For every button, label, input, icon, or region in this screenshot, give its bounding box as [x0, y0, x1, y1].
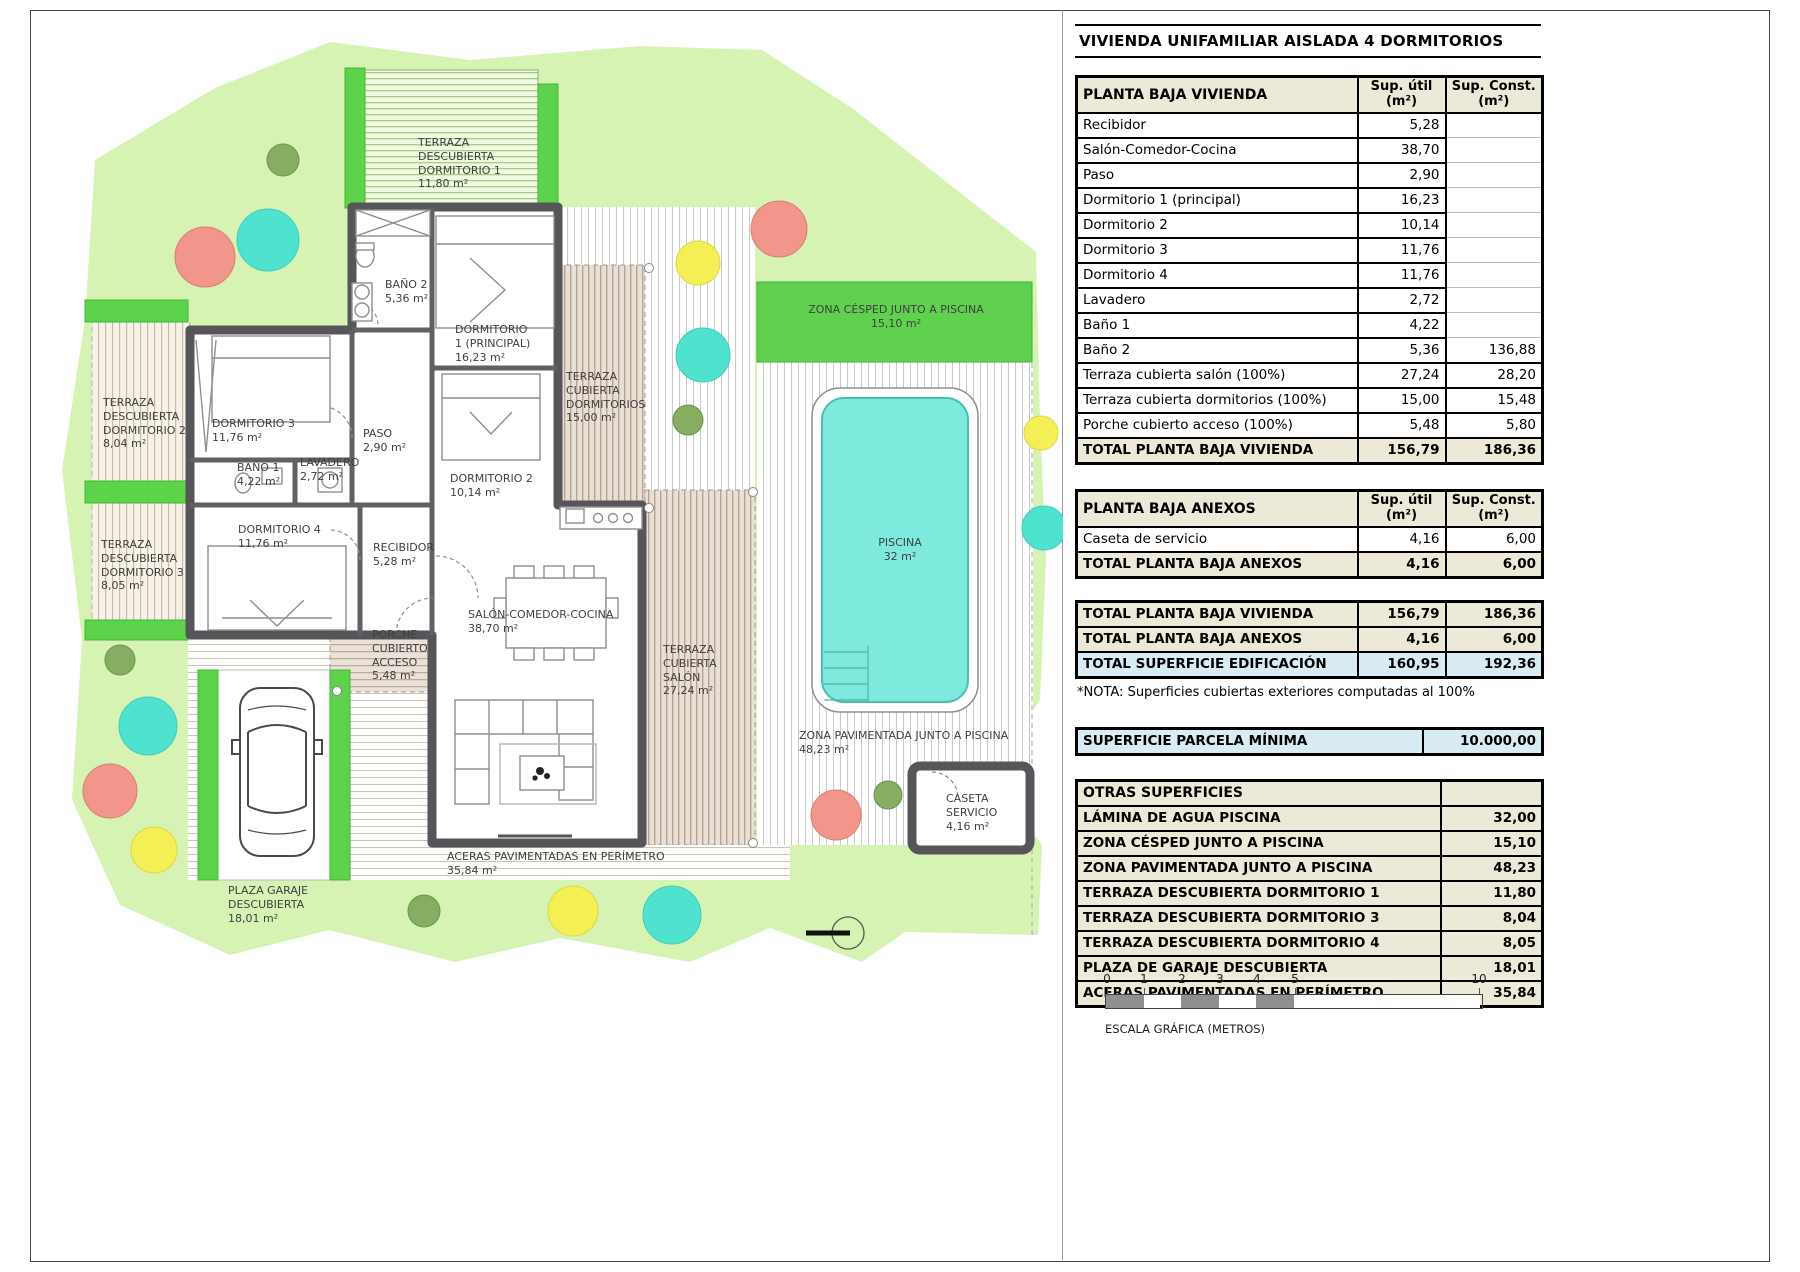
label-line: DORMITORIO 2 — [450, 472, 533, 486]
cell: TERRAZA DESCUBIERTA DORMITORIO 1 — [1077, 881, 1441, 906]
tree — [676, 241, 720, 285]
cell: Dormitorio 3 — [1077, 238, 1358, 263]
scale-segment — [1106, 995, 1144, 1008]
tree — [811, 790, 861, 840]
cell: Baño 2 — [1077, 338, 1358, 363]
cell: ZONA PAVIMENTADA JUNTO A PISCINA — [1077, 856, 1441, 881]
label-line: 32 m² — [845, 550, 955, 564]
col-unit: (m²) — [1364, 95, 1440, 110]
label-zona-pavimentada: ZONA PAVIMENTADA JUNTO A PISCINA48,23 m² — [799, 729, 1008, 757]
floor-plan — [30, 10, 1063, 1262]
scale-segment — [1256, 995, 1294, 1008]
scale-tick-label: 5 — [1291, 972, 1299, 986]
summary-util: 156,79 — [1358, 601, 1446, 627]
label-terraza-dorm1: TERRAZADESCUBIERTADORMITORIO 111,80 m² — [418, 136, 501, 191]
label-line: 5,48 m² — [372, 669, 428, 683]
cell: 4,22 — [1358, 313, 1446, 338]
col-unit: (m²) — [1452, 95, 1537, 110]
table-row: Baño 25,36136,88 — [1077, 338, 1543, 363]
label-line: PORCHE — [372, 628, 428, 642]
cell: 27,24 — [1358, 363, 1446, 388]
label-line: 38,70 m² — [468, 622, 613, 636]
col-label: Sup. útil — [1364, 80, 1440, 95]
table-row: ZONA CÉSPED JUNTO A PISCINA15,10 — [1077, 831, 1543, 856]
label-line: 8,04 m² — [103, 437, 186, 451]
cell: 16,23 — [1358, 188, 1446, 213]
cell: Paso — [1077, 163, 1358, 188]
label-salon: SALÓN-COMEDOR-COCINA38,70 m² — [468, 608, 613, 636]
cell: 11,76 — [1358, 238, 1446, 263]
label-line: 5,28 m² — [373, 555, 434, 569]
note-text: *NOTA: Superficies cubiertas exteriores … — [1075, 685, 1541, 700]
label-caseta: CASETASERVICIO4,16 m² — [946, 792, 997, 833]
tree — [874, 781, 902, 809]
summary-const: 6,00 — [1446, 627, 1543, 652]
table-row: LÁMINA DE AGUA PISCINA32,00 — [1077, 806, 1543, 831]
label-line: ZONA CÉSPED JUNTO A PISCINA — [760, 303, 1032, 317]
label-line: 10,14 m² — [450, 486, 533, 500]
table-title: PLANTA BAJA ANEXOS — [1077, 490, 1358, 526]
scale-segment — [1294, 995, 1480, 1008]
cell: Caseta de servicio — [1077, 527, 1358, 552]
label-terraza-cub-dorm: TERRAZACUBIERTADORMITORIOS15,00 m² — [566, 370, 645, 425]
cell — [1446, 188, 1543, 213]
label-line: 2,72 m² — [300, 470, 359, 484]
plan-sheet: { "title": "VIVIENDA UNIFAMILIAR AISLADA… — [0, 0, 1800, 1272]
strip-right-top — [557, 207, 755, 265]
cell: 11,76 — [1358, 263, 1446, 288]
label-line: 8,05 m² — [101, 579, 184, 593]
label-line: 16,23 m² — [455, 351, 530, 365]
tree — [1024, 416, 1058, 450]
cell: 32,00 — [1441, 806, 1543, 831]
total-util: 4,16 — [1358, 552, 1446, 578]
tree — [548, 886, 598, 936]
table-row: Paso2,90 — [1077, 163, 1543, 188]
label-dorm4: DORMITORIO 411,76 m² — [238, 523, 321, 551]
scale-tick-label: 4 — [1253, 972, 1261, 986]
cell — [1446, 263, 1543, 288]
label-line: BAÑO 1 — [237, 461, 280, 475]
label-bano2: BAÑO 25,36 m² — [385, 278, 428, 306]
cell: 2,72 — [1358, 288, 1446, 313]
table-row: Dormitorio 1 (principal)16,23 — [1077, 188, 1543, 213]
tree — [1022, 506, 1063, 550]
table-row: ZONA PAVIMENTADA JUNTO A PISCINA48,23 — [1077, 856, 1543, 881]
label-line: LAVADERO — [300, 456, 359, 470]
cell: 4,16 — [1358, 527, 1446, 552]
table-row: Lavadero2,72 — [1077, 288, 1543, 313]
summary-util: 4,16 — [1358, 627, 1446, 652]
label-zona-cesped: ZONA CÉSPED JUNTO A PISCINA15,10 m² — [760, 303, 1032, 331]
summary-const: 192,36 — [1446, 652, 1543, 678]
scale-caption: ESCALA GRÁFICA (METROS) — [1105, 1022, 1265, 1036]
cell: Salón-Comedor-Cocina — [1077, 138, 1358, 163]
label-dorm3: DORMITORIO 311,76 m² — [212, 417, 295, 445]
cell: 5,48 — [1358, 413, 1446, 438]
cell — [1446, 213, 1543, 238]
table-planta-baja-anexos: PLANTA BAJA ANEXOS Sup. útil (m²) Sup. C… — [1075, 489, 1544, 579]
summary-row: TOTAL PLANTA BAJA VIVIENDA 156,79 186,36 — [1077, 601, 1543, 627]
scale-tick-label: 1 — [1140, 972, 1148, 986]
label-paso: PASO2,90 m² — [363, 427, 406, 455]
total-row: TOTAL PLANTA BAJA ANEXOS 4,16 6,00 — [1077, 552, 1543, 578]
label-bano1: BAÑO 14,22 m² — [237, 461, 280, 489]
label-line: PASO — [363, 427, 406, 441]
cell: Porche cubierto acceso (100%) — [1077, 413, 1358, 438]
table-row: Dormitorio 210,14 — [1077, 213, 1543, 238]
label-line: 4,22 m² — [237, 475, 280, 489]
table-row: Salón-Comedor-Cocina38,70 — [1077, 138, 1543, 163]
label-line: 27,24 m² — [663, 684, 717, 698]
col-sup-util: Sup. útil (m²) — [1358, 490, 1446, 526]
label-line: 2,90 m² — [363, 441, 406, 455]
tree — [643, 886, 701, 944]
table-parcela-minima: SUPERFICIE PARCELA MÍNIMA 10.000,00 — [1075, 727, 1544, 756]
cell: 5,36 — [1358, 338, 1446, 363]
table-row: Baño 14,22 — [1077, 313, 1543, 338]
sheet-title: VIVIENDA UNIFAMILIAR AISLADA 4 DORMITORI… — [1075, 24, 1541, 58]
col-unit: (m²) — [1364, 509, 1440, 524]
label-line: 5,36 m² — [385, 292, 428, 306]
cell: 136,88 — [1446, 338, 1543, 363]
table-row: Porche cubierto acceso (100%)5,485,80 — [1077, 413, 1543, 438]
total-label: TOTAL PLANTA BAJA VIVIENDA — [1077, 438, 1358, 464]
summary-label: TOTAL PLANTA BAJA ANEXOS — [1077, 627, 1358, 652]
col-unit: (m²) — [1452, 509, 1537, 524]
tree — [175, 227, 235, 287]
label-line: DESCUBIERTA — [228, 898, 308, 912]
car — [232, 688, 322, 856]
label-line: 11,80 m² — [418, 177, 501, 191]
tree — [119, 697, 177, 755]
parcela-value: 10.000,00 — [1423, 728, 1543, 754]
label-line: DORMITORIO 2 — [103, 424, 186, 438]
label-porche: PORCHECUBIERTOACCESO5,48 m² — [372, 628, 428, 683]
cell: 5,28 — [1358, 113, 1446, 138]
label-line: SERVICIO — [946, 806, 997, 820]
cell: ZONA CÉSPED JUNTO A PISCINA — [1077, 831, 1441, 856]
label-line: PISCINA — [845, 536, 955, 550]
cell: TERRAZA DESCUBIERTA DORMITORIO 3 — [1077, 906, 1441, 931]
cell: 8,05 — [1441, 931, 1543, 956]
scale-tick-label: 0 — [1103, 972, 1111, 986]
tree — [131, 827, 177, 873]
total-const: 186,36 — [1446, 438, 1543, 464]
cell: 15,10 — [1441, 831, 1543, 856]
table-row: Terraza cubierta salón (100%)27,2428,20 — [1077, 363, 1543, 388]
label-lavadero: LAVADERO2,72 m² — [300, 456, 359, 484]
table-header-row: OTRAS SUPERFICIES — [1077, 780, 1543, 806]
cell — [1446, 113, 1543, 138]
label-line: DORMITORIO 3 — [212, 417, 295, 431]
col-sup-util: Sup. útil (m²) — [1358, 77, 1446, 113]
label-line: RECIBIDOR — [373, 541, 434, 555]
tree — [751, 201, 807, 257]
cell: 15,00 — [1358, 388, 1446, 413]
label-line: TERRAZA — [418, 136, 501, 150]
label-line: DESCUBIERTA — [103, 410, 186, 424]
tree — [83, 764, 137, 818]
cell: 38,70 — [1358, 138, 1446, 163]
summary-const: 186,36 — [1446, 601, 1543, 627]
cell — [1446, 138, 1543, 163]
cell: Dormitorio 1 (principal) — [1077, 188, 1358, 213]
label-line: 35,84 m² — [447, 864, 665, 878]
col-label: Sup. útil — [1364, 494, 1440, 509]
label-line: 15,00 m² — [566, 411, 645, 425]
label-plaza-garaje: PLAZA GARAJEDESCUBIERTA18,01 m² — [228, 884, 308, 925]
table-summary: TOTAL PLANTA BAJA VIVIENDA 156,79 186,36… — [1075, 600, 1544, 679]
col-label: Sup. Const. — [1452, 80, 1537, 95]
cell: LÁMINA DE AGUA PISCINA — [1077, 806, 1441, 831]
label-line: TERRAZA — [566, 370, 645, 384]
cell: Baño 1 — [1077, 313, 1358, 338]
table-header-row: PLANTA BAJA VIVIENDA Sup. útil (m²) Sup.… — [1077, 77, 1543, 113]
summary-label: TOTAL PLANTA BAJA VIVIENDA — [1077, 601, 1358, 627]
label-line: DORMITORIO 1 — [418, 164, 501, 178]
label-piscina: PISCINA32 m² — [845, 536, 955, 564]
parcela-label: SUPERFICIE PARCELA MÍNIMA — [1077, 728, 1423, 754]
cell: TERRAZA DESCUBIERTA DORMITORIO 4 — [1077, 931, 1441, 956]
total-const: 6,00 — [1446, 552, 1543, 578]
label-line: DESCUBIERTA — [418, 150, 501, 164]
label-aceras: ACERAS PAVIMENTADAS EN PERÍMETRO35,84 m² — [447, 850, 665, 878]
table-row: Dormitorio 411,76 — [1077, 263, 1543, 288]
label-terraza-cub-salon: TERRAZACUBIERTASALÓN27,24 m² — [663, 643, 717, 698]
label-line: CUBIERTA — [566, 384, 645, 398]
label-line: SALÓN — [663, 671, 717, 685]
empty-header-cell — [1441, 780, 1543, 806]
scale-segment — [1219, 995, 1257, 1008]
table-row: Recibidor5,28 — [1077, 113, 1543, 138]
cell: Lavadero — [1077, 288, 1358, 313]
label-line: 11,76 m² — [238, 537, 321, 551]
table-row: TERRAZA DESCUBIERTA DORMITORIO 38,04 — [1077, 906, 1543, 931]
label-line: CUBIERTA — [663, 657, 717, 671]
label-line: TERRAZA — [663, 643, 717, 657]
total-label: TOTAL PLANTA BAJA ANEXOS — [1077, 552, 1358, 578]
label-line: DORMITORIO 3 — [101, 566, 184, 580]
cell — [1446, 238, 1543, 263]
table-title: PLANTA BAJA VIVIENDA — [1077, 77, 1358, 113]
label-line: CUBIERTO — [372, 642, 428, 656]
tree — [105, 645, 135, 675]
table-row: TERRAZA DESCUBIERTA DORMITORIO 111,80 — [1077, 881, 1543, 906]
cell: 2,90 — [1358, 163, 1446, 188]
tree — [237, 209, 299, 271]
label-line: SALÓN-COMEDOR-COCINA — [468, 608, 613, 622]
cell: 11,80 — [1441, 881, 1543, 906]
cell: 6,00 — [1446, 527, 1543, 552]
label-dorm1: DORMITORIO1 (PRINCIPAL)16,23 m² — [455, 323, 530, 364]
table-row: Terraza cubierta dormitorios (100%)15,00… — [1077, 388, 1543, 413]
label-line: TERRAZA — [101, 538, 184, 552]
label-terraza-dorm2: TERRAZADESCUBIERTADORMITORIO 28,04 m² — [103, 396, 186, 451]
label-line: DESCUBIERTA — [101, 552, 184, 566]
label-line: 15,10 m² — [760, 317, 1032, 331]
label-line: ACERAS PAVIMENTADAS EN PERÍMETRO — [447, 850, 665, 864]
label-line: TERRAZA — [103, 396, 186, 410]
label-terraza-dorm3: TERRAZADESCUBIERTADORMITORIO 38,05 m² — [101, 538, 184, 593]
label-line: DORMITORIOS — [566, 398, 645, 412]
label-recibidor: RECIBIDOR5,28 m² — [373, 541, 434, 569]
cell: 15,48 — [1446, 388, 1543, 413]
tree — [673, 405, 703, 435]
cell — [1446, 313, 1543, 338]
scale-bar — [1105, 994, 1483, 1009]
label-dorm2: DORMITORIO 210,14 m² — [450, 472, 533, 500]
table-planta-baja-vivienda: PLANTA BAJA VIVIENDA Sup. útil (m²) Sup.… — [1075, 75, 1544, 465]
table-row: TERRAZA DESCUBIERTA DORMITORIO 48,05 — [1077, 931, 1543, 956]
scale-segment — [1144, 995, 1182, 1008]
cell: Recibidor — [1077, 113, 1358, 138]
table-title: OTRAS SUPERFICIES — [1077, 780, 1441, 806]
total-util: 156,79 — [1358, 438, 1446, 464]
summary-label: TOTAL SUPERFICIE EDIFICACIÓN — [1077, 652, 1358, 678]
cell — [1446, 288, 1543, 313]
scale-tick-label: 3 — [1216, 972, 1224, 986]
cell — [1446, 163, 1543, 188]
label-line: BAÑO 2 — [385, 278, 428, 292]
col-sup-const: Sup. Const. (m²) — [1446, 77, 1543, 113]
label-line: 18,01 m² — [228, 912, 308, 926]
summary-total-row: TOTAL SUPERFICIE EDIFICACIÓN 160,95 192,… — [1077, 652, 1543, 678]
label-line: CASETA — [946, 792, 997, 806]
cell: Terraza cubierta dormitorios (100%) — [1077, 388, 1358, 413]
cell: Terraza cubierta salón (100%) — [1077, 363, 1358, 388]
tree — [676, 328, 730, 382]
total-row: TOTAL PLANTA BAJA VIVIENDA 156,79 186,36 — [1077, 438, 1543, 464]
table-row: Dormitorio 311,76 — [1077, 238, 1543, 263]
cell: 48,23 — [1441, 856, 1543, 881]
table-header-row: PLANTA BAJA ANEXOS Sup. útil (m²) Sup. C… — [1077, 490, 1543, 526]
scale-tick-label: 2 — [1178, 972, 1186, 986]
col-sup-const: Sup. Const. (m²) — [1446, 490, 1543, 526]
cell: Dormitorio 4 — [1077, 263, 1358, 288]
label-line: ACCESO — [372, 656, 428, 670]
cell: 10,14 — [1358, 213, 1446, 238]
data-panel: VIVIENDA UNIFAMILIAR AISLADA 4 DORMITORI… — [1075, 24, 1541, 1008]
graphic-scale: 0 1 2 3 4 5 10 ESCALA GRÁFICA (METROS) — [1105, 972, 1505, 1042]
label-line: ZONA PAVIMENTADA JUNTO A PISCINA — [799, 729, 1008, 743]
label-line: 11,76 m² — [212, 431, 295, 445]
label-line: 48,23 m² — [799, 743, 1008, 757]
label-line: DORMITORIO — [455, 323, 530, 337]
scale-segment — [1181, 995, 1219, 1008]
cell: 5,80 — [1446, 413, 1543, 438]
label-line: 4,16 m² — [946, 820, 997, 834]
cell: Dormitorio 2 — [1077, 213, 1358, 238]
tree — [408, 895, 440, 927]
summary-util: 160,95 — [1358, 652, 1446, 678]
label-line: DORMITORIO 4 — [238, 523, 321, 537]
tree — [267, 144, 299, 176]
label-line: PLAZA GARAJE — [228, 884, 308, 898]
summary-row: TOTAL PLANTA BAJA ANEXOS 4,16 6,00 — [1077, 627, 1543, 652]
table-row: Caseta de servicio4,166,00 — [1077, 527, 1543, 552]
col-label: Sup. Const. — [1452, 494, 1537, 509]
cell: 8,04 — [1441, 906, 1543, 931]
label-line: 1 (PRINCIPAL) — [455, 337, 530, 351]
parcela-row: SUPERFICIE PARCELA MÍNIMA 10.000,00 — [1077, 728, 1543, 754]
scale-tick-label: 10 — [1471, 972, 1486, 986]
cell: 28,20 — [1446, 363, 1543, 388]
